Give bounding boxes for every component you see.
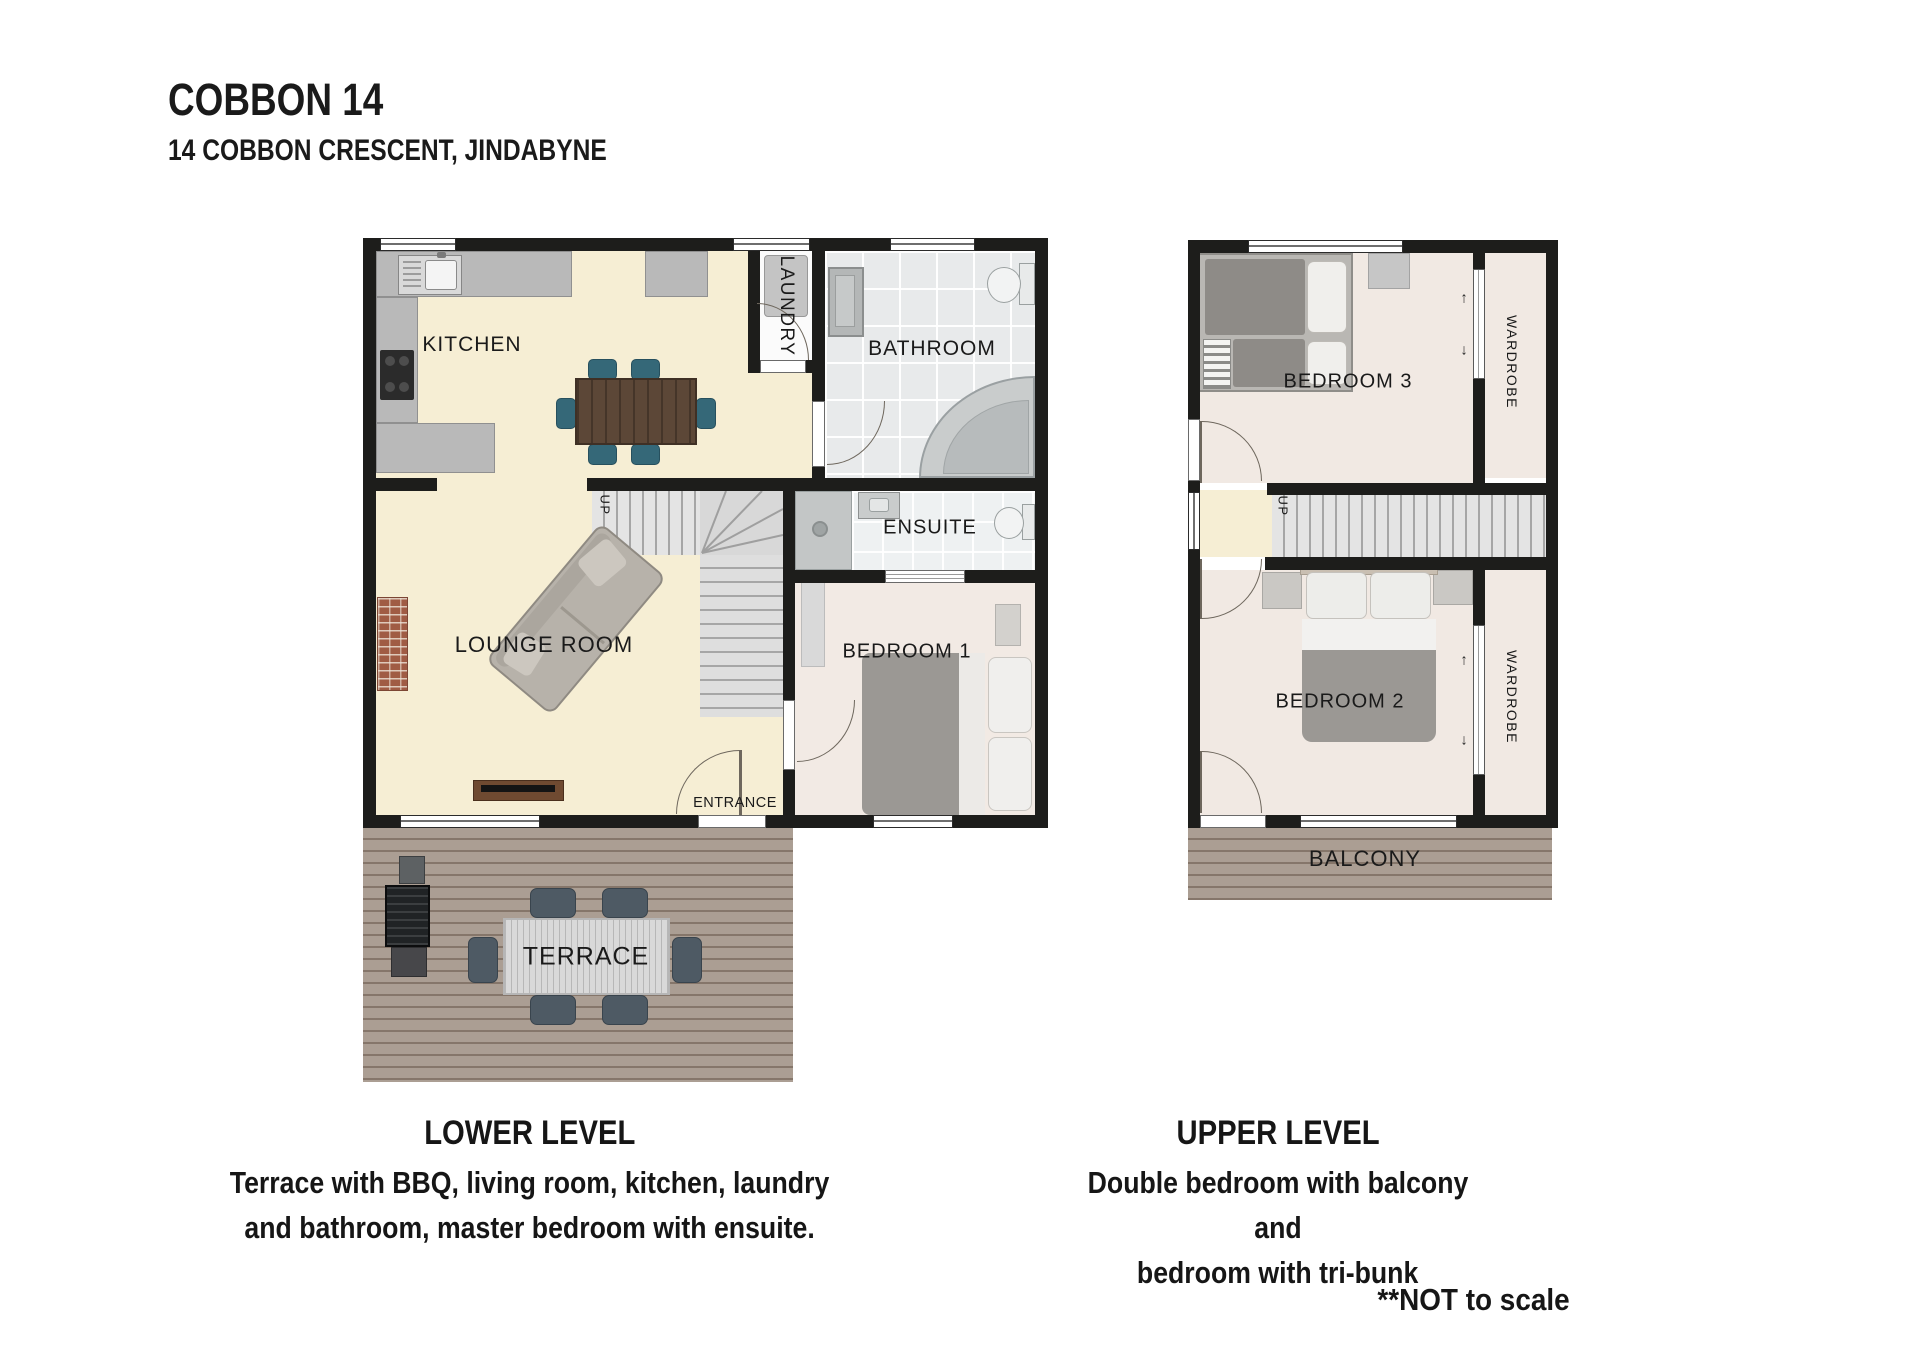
ensuite-sink [858, 492, 900, 519]
kitchen-counter-ell [376, 423, 495, 473]
pillow [988, 737, 1032, 811]
room-label-kitchen: KITCHEN [422, 333, 521, 357]
room-label-entrance: ENTRANCE [693, 795, 777, 811]
entrance-door [698, 815, 766, 828]
wall [1473, 775, 1485, 815]
dining-chair [588, 359, 617, 380]
burner [385, 356, 395, 366]
room-label-ensuite: ENSUITE [883, 517, 977, 540]
nightstand [1262, 572, 1302, 609]
outdoor-chair [672, 937, 702, 983]
wall [1035, 238, 1048, 828]
balcony-door [1200, 815, 1266, 828]
staircase-upper [1272, 490, 1546, 557]
pillow [1370, 572, 1431, 619]
bbq-cart [391, 947, 427, 977]
burner [399, 382, 409, 392]
pillow [988, 657, 1032, 733]
wall [783, 491, 795, 700]
dining-chair [631, 444, 660, 465]
room-label-bedroom1: BEDROOM 1 [842, 641, 971, 664]
dining-chair [588, 444, 617, 465]
staircase-lower-winder [700, 491, 783, 555]
page-address: 14 COBBON CRESCENT, JINDABYNE [168, 134, 703, 168]
bunk-mattress-top [1205, 259, 1305, 335]
wall [363, 238, 376, 828]
bedroom3-cabinet [1368, 253, 1410, 289]
bbq-side-shelf [399, 856, 425, 884]
room-label-terrace: TERRACE [523, 943, 649, 972]
wall [1265, 557, 1546, 570]
stair-landing [1200, 490, 1272, 557]
outdoor-chair [530, 995, 576, 1025]
door-leaf [1200, 751, 1202, 813]
page-title-text: COBBON 14 [168, 74, 383, 126]
shower-head [812, 521, 828, 537]
arrow-down-icon: ↓ [1460, 732, 1468, 749]
wall [376, 478, 437, 491]
sink-basin [425, 260, 457, 290]
fireplace [377, 597, 408, 691]
wall [783, 770, 795, 815]
laundry-door [760, 360, 806, 373]
stairs-up-label: UP [1276, 495, 1291, 516]
pillow [1306, 572, 1367, 619]
arrow-up-icon: ↑ [1460, 290, 1468, 307]
wall [812, 467, 825, 478]
pillow [1307, 261, 1347, 333]
toilet-bowl [994, 507, 1024, 539]
wall [1473, 570, 1485, 625]
bed1-sheet-fold [959, 653, 985, 815]
bedroom3-door [1188, 419, 1200, 481]
wall [1473, 379, 1485, 483]
not-to-scale-note: **NOT to scale [1290, 1282, 1570, 1318]
bunk-ladder [1203, 339, 1231, 389]
arrow-up-icon: ↑ [1460, 652, 1468, 669]
window [380, 238, 456, 251]
bed1-blanket [862, 653, 959, 815]
room-label-lounge: LOUNGE ROOM [455, 632, 633, 658]
bedroom1-cabinet [801, 577, 825, 667]
corner-bath-tub [943, 400, 1029, 474]
lower-level-description-line2: and bathroom, master bedroom with ensuit… [245, 1205, 815, 1250]
window [890, 238, 975, 251]
stairs-up-label: UP [598, 494, 613, 515]
window [1300, 815, 1457, 828]
floor-plan-page: COBBON 14 14 COBBON CRESCENT, JINDABYNE [0, 0, 1920, 1358]
staircase-lower-flight [700, 555, 783, 717]
room-label-bedroom3: BEDROOM 3 [1283, 371, 1412, 394]
kitchen-sink [398, 255, 462, 295]
nightstand [1433, 570, 1473, 605]
wall [587, 478, 1048, 491]
wall [812, 251, 825, 401]
dining-chair [631, 359, 660, 380]
bedroom1-door [783, 700, 795, 770]
wardrobe-sliding-door [1473, 269, 1485, 379]
room-label-bedroom2: BEDROOM 2 [1275, 691, 1404, 714]
outdoor-chair [602, 888, 648, 918]
room-label-wardrobe-bottom: WARDROBE [1504, 650, 1520, 744]
lower-level-description: Terrace with BBQ, living room, kitchen, … [180, 1160, 880, 1250]
room-label-laundry: LAUNDRY [775, 256, 797, 357]
nightstand [995, 604, 1021, 646]
dining-chair [696, 398, 716, 429]
window [1248, 240, 1403, 253]
ensuite-sliding-door [885, 570, 965, 583]
sink-tap [437, 252, 446, 258]
outdoor-chair [530, 888, 576, 918]
vanity-basin [835, 275, 855, 327]
page-address-text: 14 COBBON CRESCENT, JINDABYNE [168, 134, 607, 168]
wardrobe-sliding-door [1473, 625, 1485, 775]
dining-chair [556, 398, 576, 429]
room-label-wardrobe-top: WARDROBE [1504, 315, 1520, 409]
not-to-scale-note-text: **NOT to scale [1378, 1282, 1570, 1318]
wall [1267, 483, 1546, 495]
door-leaf [1200, 421, 1202, 483]
sink-drainer [403, 261, 421, 289]
window [1188, 492, 1200, 550]
lower-level-heading-text: LOWER LEVEL [424, 1114, 635, 1153]
dining-table [575, 378, 697, 445]
window [733, 238, 810, 251]
upper-level-description: Double bedroom with balcony and bedroom … [1028, 1160, 1528, 1295]
outdoor-chair [468, 937, 498, 983]
sofa-pillow [576, 537, 628, 589]
burner [399, 356, 409, 366]
lower-level-heading: LOWER LEVEL [230, 1114, 830, 1153]
upper-level-heading: UPPER LEVEL [1058, 1114, 1498, 1153]
wall [1546, 240, 1558, 828]
bbq-grill [385, 885, 430, 947]
outdoor-chair [602, 995, 648, 1025]
wall [1473, 251, 1485, 269]
tv-unit [473, 780, 564, 801]
tv-screen [481, 785, 555, 792]
stove-cooktop [380, 350, 414, 400]
room-label-balcony: BALCONY [1309, 846, 1421, 872]
vanity [828, 267, 864, 337]
door-leaf [1200, 559, 1202, 619]
upper-level-description-line1: Double bedroom with balcony and [1063, 1160, 1493, 1250]
window [873, 815, 953, 828]
bathroom-door [812, 401, 825, 467]
ensuite-basin [869, 498, 889, 512]
lower-level-description-line1: Terrace with BBQ, living room, kitchen, … [230, 1160, 829, 1205]
room-label-bathroom: BATHROOM [868, 337, 996, 361]
upper-level-heading-text: UPPER LEVEL [1176, 1114, 1379, 1153]
refrigerator [645, 251, 708, 297]
burner [385, 382, 395, 392]
arrow-down-icon: ↓ [1460, 342, 1468, 359]
toilet-tank [1019, 263, 1035, 305]
window [400, 815, 540, 828]
page-title: COBBON 14 [168, 74, 431, 126]
bed2-sheet [1302, 619, 1436, 652]
